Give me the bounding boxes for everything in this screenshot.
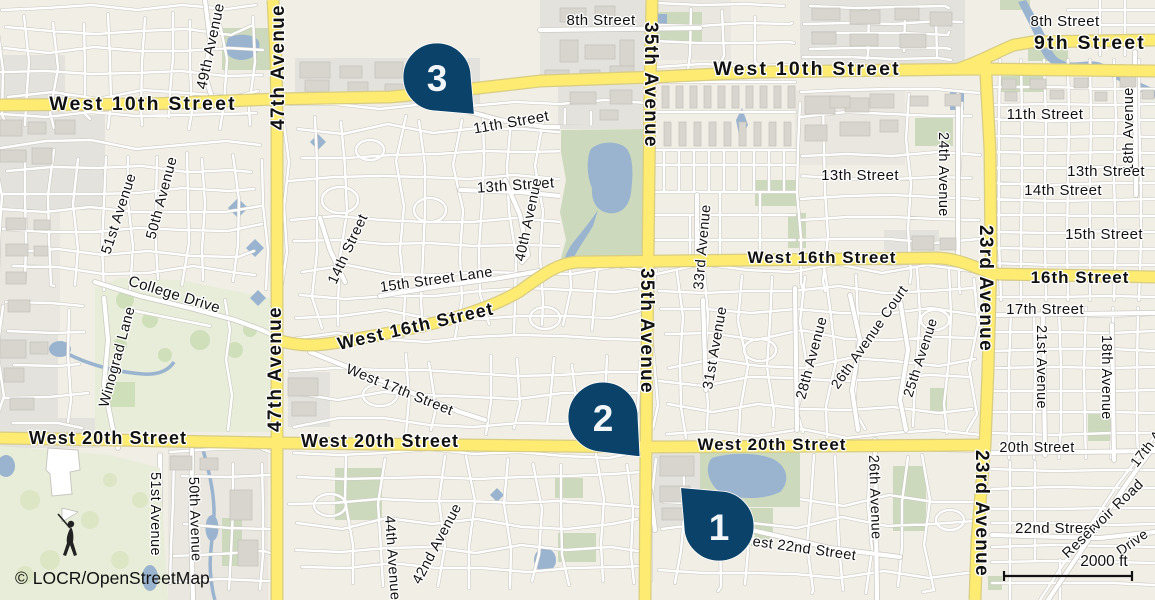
svg-text:2: 2 [593,398,614,439]
svg-text:35th Avenue: 35th Avenue [640,22,661,148]
svg-text:23rd Avenue: 23rd Avenue [975,225,996,352]
svg-text:3: 3 [427,58,448,99]
svg-text:8th Street: 8th Street [1030,13,1099,30]
svg-text:© LOCR/OpenStreetMap: © LOCR/OpenStreetMap [15,568,210,588]
svg-text:23rd Avenue: 23rd Avenue [971,450,992,577]
svg-text:18th Avenue: 18th Avenue [1098,335,1114,420]
svg-text:1: 1 [709,507,730,548]
svg-text:West 10th Street: West 10th Street [713,58,901,80]
svg-text:15th Street: 15th Street [1065,226,1143,243]
svg-text:14th Street: 14th Street [1024,182,1102,199]
svg-text:West 20th Street: West 20th Street [698,435,847,454]
svg-text:West 16th Street: West 16th Street [748,248,897,267]
svg-text:18th Avenue: 18th Avenue [1121,87,1137,172]
svg-text:13th Street: 13th Street [821,167,899,184]
svg-text:13th Street: 13th Street [1067,163,1145,180]
svg-text:8th Street: 8th Street [566,12,635,29]
svg-text:47th Avenue: 47th Avenue [268,4,289,130]
svg-text:20th Street: 20th Street [999,440,1074,456]
svg-text:24th Avenue: 24th Avenue [935,132,951,217]
svg-text:17th Street: 17th Street [1006,301,1084,318]
svg-text:9th Street: 9th Street [1034,32,1146,54]
svg-text:West 10th Street: West 10th Street [49,93,237,115]
svg-text:50th Avenue: 50th Avenue [185,477,204,562]
svg-text:West 20th Street: West 20th Street [301,431,459,451]
svg-text:16th Street: 16th Street [1031,268,1130,287]
svg-text:26th Avenue: 26th Avenue [865,455,884,540]
svg-text:47th Avenue: 47th Avenue [265,306,286,432]
svg-text:2000 ft: 2000 ft [1080,553,1128,570]
svg-text:21st Avenue: 21st Avenue [1033,325,1049,409]
svg-text:West 20th Street: West 20th Street [29,428,187,448]
svg-text:11th Street: 11th Street [1007,106,1084,123]
svg-text:35th Avenue: 35th Avenue [636,268,657,394]
svg-text:51st Avenue: 51st Avenue [147,472,163,556]
